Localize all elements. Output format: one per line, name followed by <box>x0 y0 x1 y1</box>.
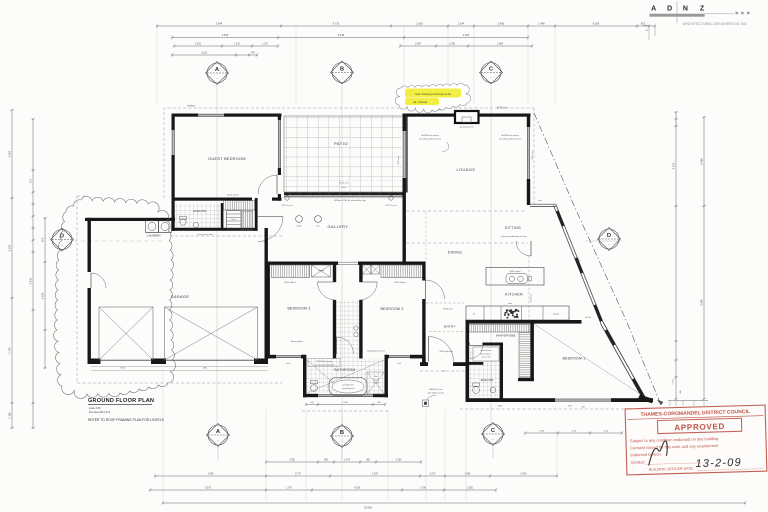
svg-text:9710 over: 9710 over <box>339 182 349 185</box>
svg-text:5.455: 5.455 <box>521 473 527 475</box>
svg-text:16/16 sliders: 16/16 sliders <box>284 281 296 284</box>
svg-text:B: B <box>340 430 344 436</box>
svg-text:SIGNED:: SIGNED: <box>631 460 646 464</box>
svg-text:WARDROBE: WARDROBE <box>496 334 516 338</box>
svg-text:A: A <box>651 6 656 13</box>
svg-text:1.939: 1.939 <box>449 43 455 45</box>
svg-text:endorsed hereon.: endorsed hereon. <box>630 451 661 457</box>
svg-text:Z: Z <box>700 6 705 13</box>
svg-text:6.061: 6.061 <box>8 150 12 157</box>
svg-text:SITTING: SITTING <box>505 226 521 230</box>
svg-text:ENSUITE: ENSUITE <box>481 378 494 382</box>
svg-text:6.266: 6.266 <box>593 21 600 25</box>
svg-text:1814 over: 1814 over <box>531 293 533 302</box>
svg-text:1.270: 1.270 <box>262 43 268 45</box>
svg-text:shower: shower <box>373 379 380 381</box>
svg-text:26.056: 26.056 <box>364 506 372 510</box>
svg-text:3.270: 3.270 <box>430 473 436 475</box>
svg-text:2.350: 2.350 <box>289 459 295 461</box>
svg-text:B: B <box>340 66 344 72</box>
svg-text:sash: sash <box>397 363 401 365</box>
svg-text:24/10 stacker: 24/10 stacker <box>227 194 239 197</box>
svg-text:post: post <box>316 225 320 228</box>
svg-text:BATHROOM: BATHROOM <box>334 368 355 372</box>
svg-text:extent of gathering roof over: extent of gathering roof over <box>501 235 527 238</box>
svg-text:2.440: 2.440 <box>539 430 545 432</box>
svg-text:1800 high wall: 1800 high wall <box>439 351 453 353</box>
svg-text:ENSUITE: ENSUITE <box>193 209 206 213</box>
svg-text:GALLERY: GALLERY <box>328 225 349 229</box>
svg-text:D: D <box>667 6 672 13</box>
svg-text:2.980: 2.980 <box>465 473 471 475</box>
svg-text:975: 975 <box>41 237 45 242</box>
svg-text:2.954: 2.954 <box>415 43 421 45</box>
svg-text:Ph/Pb/E site pad to: Ph/Pb/E site pad to <box>421 134 440 137</box>
svg-text:ENTRY: ENTRY <box>444 325 456 329</box>
svg-text:5/15 over: 5/15 over <box>531 150 534 159</box>
svg-text:3.010: 3.010 <box>41 292 45 299</box>
svg-text:* top on pink panel plates: * top on pink panel plates <box>313 363 334 366</box>
svg-text:BEDROOM 1: BEDROOM 1 <box>562 357 585 361</box>
svg-text:4.320: 4.320 <box>463 33 470 37</box>
svg-text:note: framing to chimney to be: note: framing to chimney to be <box>415 92 452 96</box>
svg-text:ute taking 140 ph above: ute taking 140 ph above <box>499 138 522 141</box>
svg-text:2.770: 2.770 <box>295 473 301 475</box>
svg-text:mirror unit: mirror unit <box>481 356 490 359</box>
svg-text:ARCHITECTURAL DESIGNERS NZ INC: ARCHITECTURAL DESIGNERS NZ INC <box>683 22 748 26</box>
svg-text:PETGL post: PETGL post <box>282 204 293 207</box>
svg-text:1.970: 1.970 <box>372 473 378 475</box>
svg-text:(2) r braced: (2) r braced <box>413 100 427 104</box>
svg-text:6.516: 6.516 <box>338 33 345 37</box>
svg-text:2.984: 2.984 <box>497 43 503 45</box>
svg-text:1.470: 1.470 <box>344 459 350 461</box>
svg-text:1.740: 1.740 <box>8 347 12 354</box>
svg-text:370: 370 <box>29 178 33 183</box>
svg-text:standing bath: standing bath <box>342 387 355 390</box>
svg-text:6.480: 6.480 <box>700 158 704 165</box>
svg-text:807: 807 <box>641 21 646 25</box>
svg-text:5.190: 5.190 <box>8 244 12 251</box>
svg-text:tiled: tiled <box>374 375 378 378</box>
svg-text:1.244: 1.244 <box>458 21 465 25</box>
svg-text:2.410: 2.410 <box>195 43 201 45</box>
svg-text:4/11 over: 4/11 over <box>397 155 400 164</box>
svg-text:*50/760 stb vanity: *50/760 stb vanity <box>316 360 332 363</box>
svg-text:1.778: 1.778 <box>673 379 675 385</box>
svg-text:4.338: 4.338 <box>354 487 360 489</box>
svg-text:D: D <box>607 233 611 239</box>
svg-text:ref: ref <box>473 313 476 316</box>
svg-text:6.730: 6.730 <box>333 21 340 25</box>
svg-text:2.950: 2.950 <box>416 21 423 25</box>
svg-text:GROUND FLOOR PLAN: GROUND FLOOR PLAN <box>88 398 154 404</box>
svg-text:BEDROOM 2: BEDROOM 2 <box>380 307 403 311</box>
svg-text:ute taking 140 ph above: ute taking 140 ph above <box>419 138 442 141</box>
svg-text:window: window <box>187 105 195 108</box>
svg-text:1.210: 1.210 <box>234 43 240 45</box>
svg-text:1.787: 1.787 <box>286 487 292 489</box>
svg-text:3.010: 3.010 <box>201 52 207 54</box>
svg-text:wall: wall <box>538 200 542 202</box>
svg-text:2.860: 2.860 <box>498 21 505 25</box>
svg-text:sash: sash <box>286 363 290 365</box>
svg-text:ducted gas fire: ducted gas fire <box>459 126 474 129</box>
svg-text:3.516: 3.516 <box>222 33 229 37</box>
svg-text:SF10 oven: SF10 oven <box>443 309 453 311</box>
svg-text:4/6 sb: 4/6 sb <box>585 317 592 319</box>
svg-text:scale 1:50: scale 1:50 <box>89 407 101 410</box>
svg-text:1.448: 1.448 <box>538 21 545 25</box>
svg-text:safety glass door: safety glass door <box>197 233 213 236</box>
svg-text:906: 906 <box>680 390 682 393</box>
svg-text:obscure glass: obscure glass <box>291 341 303 343</box>
svg-text:2.195: 2.195 <box>396 459 402 461</box>
svg-text:4.370: 4.370 <box>672 162 676 169</box>
svg-text:floor area 280 m2 s/f: floor area 280 m2 s/f <box>89 411 110 414</box>
svg-text:M20de & P&YdL retractable seat: M20de & P&YdL retractable seat <box>334 199 366 202</box>
svg-text:over: over <box>342 187 346 189</box>
svg-text:3.495: 3.495 <box>700 299 704 306</box>
svg-text:no door: no door <box>373 383 380 385</box>
svg-text:GUEST BEDROOM: GUEST BEDROOM <box>208 157 246 161</box>
svg-text:BEDROOM 3: BEDROOM 3 <box>287 307 310 311</box>
svg-text:13-2-09: 13-2-09 <box>695 457 742 470</box>
svg-text:8970 over: 8970 over <box>497 107 507 110</box>
svg-text:LAUNDRY: LAUNDRY <box>147 234 161 238</box>
svg-text:3.944: 3.944 <box>216 21 223 25</box>
svg-text:pantry: pantry <box>553 313 560 316</box>
svg-text:5.575: 5.575 <box>205 487 211 489</box>
svg-text:storage: storage <box>318 269 324 272</box>
svg-text:KITCHEN: KITCHEN <box>505 293 523 297</box>
svg-text:4.056: 4.056 <box>208 473 214 475</box>
svg-text:16/16 sliders: 16/16 sliders <box>394 281 406 284</box>
svg-text:3.810: 3.810 <box>29 277 33 284</box>
svg-text:DINING: DINING <box>448 251 462 255</box>
svg-text:LOUNGE: LOUNGE <box>456 168 475 172</box>
svg-text:possible free: possible free <box>342 384 355 387</box>
svg-text:glass dome +: glass dome + <box>480 353 493 355</box>
svg-text:86/46 HC post: 86/46 HC post <box>429 388 443 391</box>
svg-text:REFER TO ROOF FRAMING PLAN FOR: REFER TO ROOF FRAMING PLAN FOR LINTELS <box>88 418 165 422</box>
svg-text:GARAGE: GARAGE <box>171 295 190 299</box>
svg-text:PATIO: PATIO <box>334 141 348 146</box>
svg-text:PETGL post: PETGL post <box>386 204 397 207</box>
svg-text:safety glass screen: safety glass screen <box>367 350 386 353</box>
svg-text:5060 island: 5060 island <box>510 271 521 273</box>
svg-text:2.582: 2.582 <box>467 487 473 489</box>
svg-text:60/60: 60/60 <box>297 226 302 228</box>
svg-text:N: N <box>683 6 688 13</box>
svg-text:linen: linen <box>232 219 236 221</box>
svg-text:with styline runner: with styline runner <box>428 392 445 395</box>
svg-text:1.160: 1.160 <box>8 412 12 419</box>
svg-text:APPROVED: APPROVED <box>674 422 725 432</box>
svg-text:Ph/Pb/E site pad to: Ph/Pb/E site pad to <box>501 134 520 137</box>
svg-text:1.796: 1.796 <box>420 487 426 489</box>
svg-text:800w: 800w <box>121 368 126 370</box>
